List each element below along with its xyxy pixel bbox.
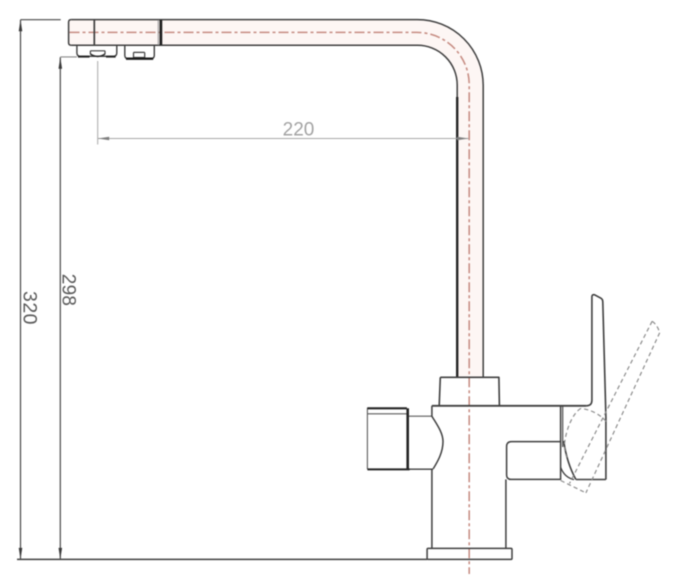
svg-text:320: 320 bbox=[19, 291, 41, 325]
svg-text:298: 298 bbox=[58, 274, 79, 307]
svg-text:220: 220 bbox=[283, 119, 315, 140]
